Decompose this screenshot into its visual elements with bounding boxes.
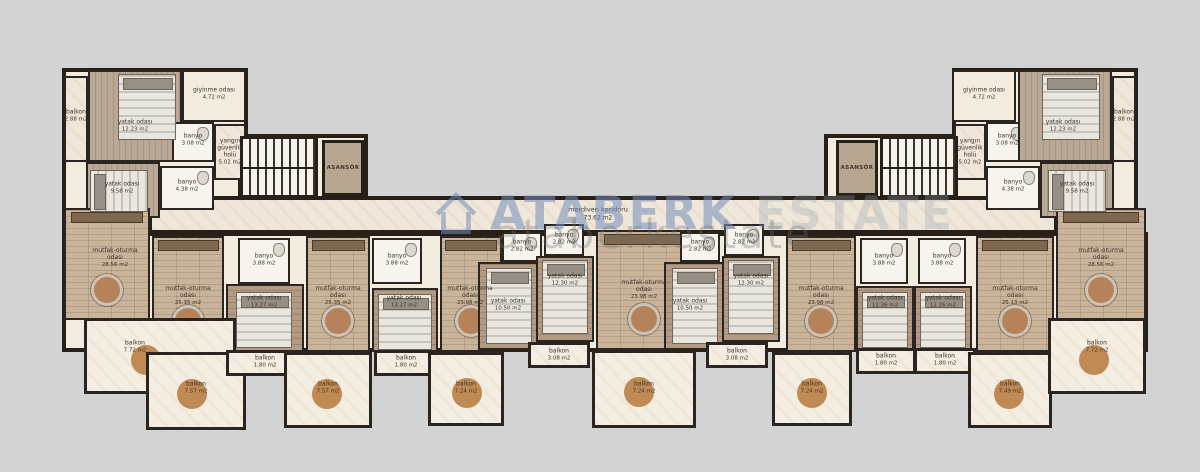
bed [236, 292, 292, 348]
corridor-label: merdiven koridoru 73.62 m2 [568, 207, 628, 222]
dressing-room [182, 70, 246, 122]
bed [1048, 170, 1106, 212]
balcony [1048, 318, 1146, 394]
balcony [284, 352, 372, 428]
bathroom [918, 238, 966, 284]
kitchen-living-room [976, 236, 1054, 352]
bed [728, 260, 774, 334]
balcony-top-right [1112, 76, 1136, 162]
stairwell-right [880, 136, 958, 198]
corridor-area: 73.62 m2 [568, 214, 628, 221]
kitchen-living-room [786, 236, 856, 352]
kitchen-living-room [64, 208, 150, 320]
fire-safety-hall [954, 124, 986, 180]
bed [90, 170, 148, 212]
bathroom [544, 224, 584, 256]
bathroom [238, 238, 290, 284]
bed [1042, 74, 1100, 140]
corridor-name: merdiven koridoru [568, 207, 628, 215]
bathroom [680, 232, 720, 262]
bathroom [860, 238, 908, 284]
bed [672, 268, 718, 344]
balcony [592, 350, 696, 428]
bed [118, 74, 176, 140]
bathroom [372, 238, 422, 284]
balcony [772, 352, 852, 426]
balcony [968, 352, 1052, 428]
stairwell-left [240, 136, 318, 198]
bathroom [986, 166, 1040, 210]
bathroom [160, 166, 214, 210]
bathroom [172, 122, 214, 162]
floor-plan: ASANSÖR ASANSÖR [0, 0, 1200, 472]
bed [486, 268, 532, 344]
bed [378, 294, 432, 350]
bed [862, 292, 908, 348]
balcony [428, 352, 504, 426]
balcony [914, 348, 976, 374]
bed [920, 292, 966, 348]
dressing-room [952, 70, 1016, 122]
bed [542, 260, 588, 334]
bathroom [724, 224, 764, 256]
balcony [856, 348, 916, 374]
elevator-right: ASANSÖR [836, 140, 878, 196]
kitchen-living-room [1056, 208, 1146, 320]
balcony [706, 342, 768, 368]
elevator-left: ASANSÖR [322, 140, 364, 196]
kitchen-living-room [306, 236, 370, 352]
balcony [528, 342, 590, 368]
balcony-top-left [64, 76, 88, 162]
